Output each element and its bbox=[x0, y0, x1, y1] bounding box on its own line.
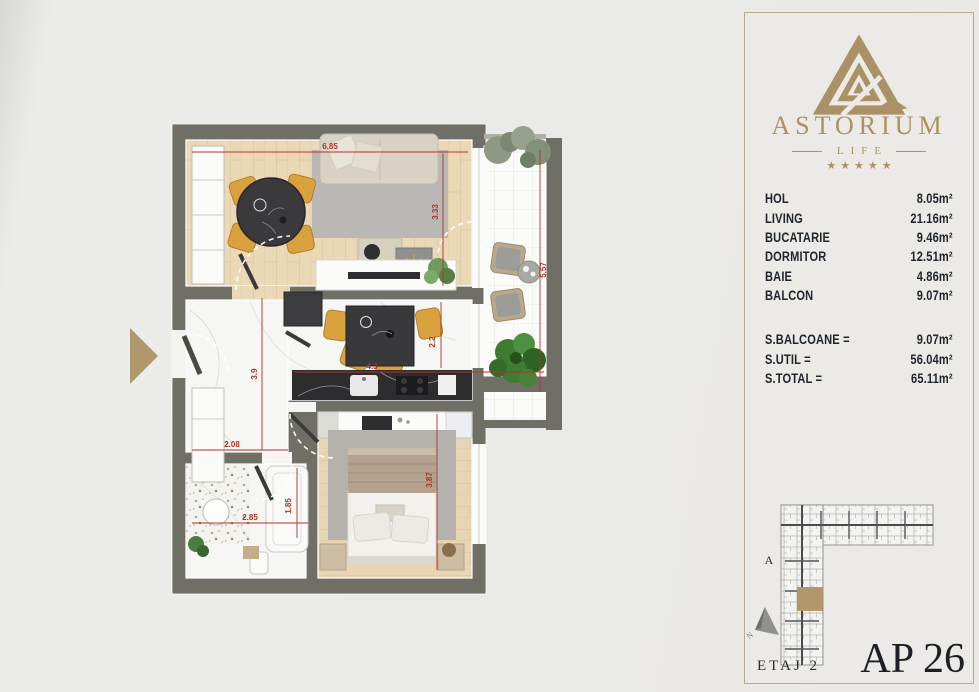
room-area: 9.46m² bbox=[917, 230, 953, 245]
room-area: 8.05m² bbox=[917, 191, 953, 206]
room-label: BAIE bbox=[765, 269, 792, 284]
divider-line bbox=[896, 151, 926, 152]
totals-list: S.BALCOANE = 9.07m² S.UTIL = 56.04m² S.T… bbox=[765, 330, 953, 388]
dim-bath-width: 2.85 bbox=[242, 513, 258, 522]
kitchen-table bbox=[346, 306, 414, 366]
total-row: S.UTIL = 56.04m² bbox=[765, 349, 953, 368]
total-value: 9.07m² bbox=[917, 332, 953, 347]
sink-round bbox=[203, 499, 229, 525]
area-row: LIVING 21.16m² bbox=[765, 208, 953, 227]
plant bbox=[442, 543, 456, 557]
dim-kitchen-width: 4.3 bbox=[366, 362, 378, 371]
bed bbox=[348, 448, 436, 564]
floor-label: ETAJ 2 bbox=[757, 658, 820, 675]
dining-table bbox=[227, 173, 317, 254]
room-label: DORMITOR bbox=[765, 249, 826, 264]
apartment-label: AP 26 bbox=[860, 635, 965, 683]
dim-bedroom-depth: 3.87 bbox=[425, 472, 434, 488]
bedroom-tv bbox=[362, 416, 392, 432]
brand-name: ASTORIUM bbox=[745, 111, 973, 141]
room-label: BUCATARIE bbox=[765, 230, 830, 245]
windows bbox=[472, 148, 486, 544]
brand-tagline-row: LIFE bbox=[745, 145, 973, 157]
balcony-table bbox=[518, 261, 540, 283]
living-door-opening bbox=[232, 286, 290, 300]
room-area: 4.86m² bbox=[917, 269, 953, 284]
total-row: S.TOTAL = 65.11m² bbox=[765, 369, 953, 388]
total-label: S.UTIL = bbox=[765, 352, 811, 367]
chair bbox=[415, 307, 444, 340]
dim-living-depth: 3.33 bbox=[431, 204, 440, 220]
brand-tagline: LIFE bbox=[830, 145, 888, 157]
page: 6.85 3.33 5.57 4.3 2.2 3.9 2.08 2.85 1.8… bbox=[0, 0, 979, 692]
entrance-arrow-icon bbox=[130, 328, 158, 384]
area-row: HOL 8.05m² bbox=[765, 189, 953, 208]
area-row: BUCATARIE 9.46m² bbox=[765, 228, 953, 247]
star-rating-icon: ★★★★★ bbox=[745, 159, 973, 172]
area-row: DORMITOR 12.51m² bbox=[765, 247, 953, 266]
balcony-chair bbox=[490, 288, 526, 322]
bedroom-door-opening bbox=[288, 402, 316, 412]
stool bbox=[243, 546, 259, 559]
compass: N bbox=[747, 603, 787, 647]
fridge bbox=[284, 292, 322, 326]
tv bbox=[348, 272, 420, 279]
north-arrow-icon bbox=[747, 603, 787, 647]
bathroom-door-opening bbox=[262, 452, 292, 464]
dim-balcony-length: 5.57 bbox=[539, 262, 548, 278]
info-panel: ASTORIUM LIFE ★★★★★ HOL 8.05m² LIVING 21… bbox=[744, 12, 974, 684]
room-area: 9.07m² bbox=[917, 288, 953, 303]
total-label: S.TOTAL = bbox=[765, 371, 822, 386]
highlighted-unit bbox=[797, 587, 823, 611]
balcony-floor-lower bbox=[484, 392, 546, 420]
hall-wardrobe bbox=[192, 388, 224, 482]
room-area-list: HOL 8.05m² LIVING 21.16m² BUCATARIE 9.46… bbox=[765, 189, 953, 305]
dim-hall-width: 2.08 bbox=[224, 440, 240, 449]
total-value: 65.11m² bbox=[911, 371, 953, 386]
total-label: S.BALCOANE = bbox=[765, 332, 850, 347]
dim-kitchen-depth: 2.2 bbox=[428, 336, 437, 348]
room-area: 21.16m² bbox=[910, 211, 952, 226]
brand-logo-icon bbox=[799, 35, 919, 115]
room-label: BALCON bbox=[765, 288, 813, 303]
hob bbox=[396, 376, 428, 395]
room-label: HOL bbox=[765, 191, 789, 206]
building-label: A bbox=[759, 553, 779, 568]
kitchen-counter bbox=[292, 370, 472, 400]
area-row: BALCON 9.07m² bbox=[765, 286, 953, 305]
dim-hall-depth: 3.9 bbox=[250, 368, 259, 380]
divider-line bbox=[792, 151, 822, 152]
total-value: 56.04m² bbox=[910, 352, 952, 367]
area-row: BAIE 4.86m² bbox=[765, 267, 953, 286]
total-row: S.BALCOANE = 9.07m² bbox=[765, 330, 953, 349]
room-area: 12.51m² bbox=[910, 249, 952, 264]
dim-bath-depth: 1.85 bbox=[284, 498, 293, 514]
nightstand bbox=[320, 544, 346, 570]
floor-plan: 6.85 3.33 5.57 4.3 2.2 3.9 2.08 2.85 1.8… bbox=[0, 0, 740, 692]
room-label: LIVING bbox=[765, 211, 803, 226]
dim-living-width: 6.85 bbox=[322, 142, 338, 151]
counter-item bbox=[438, 375, 456, 395]
